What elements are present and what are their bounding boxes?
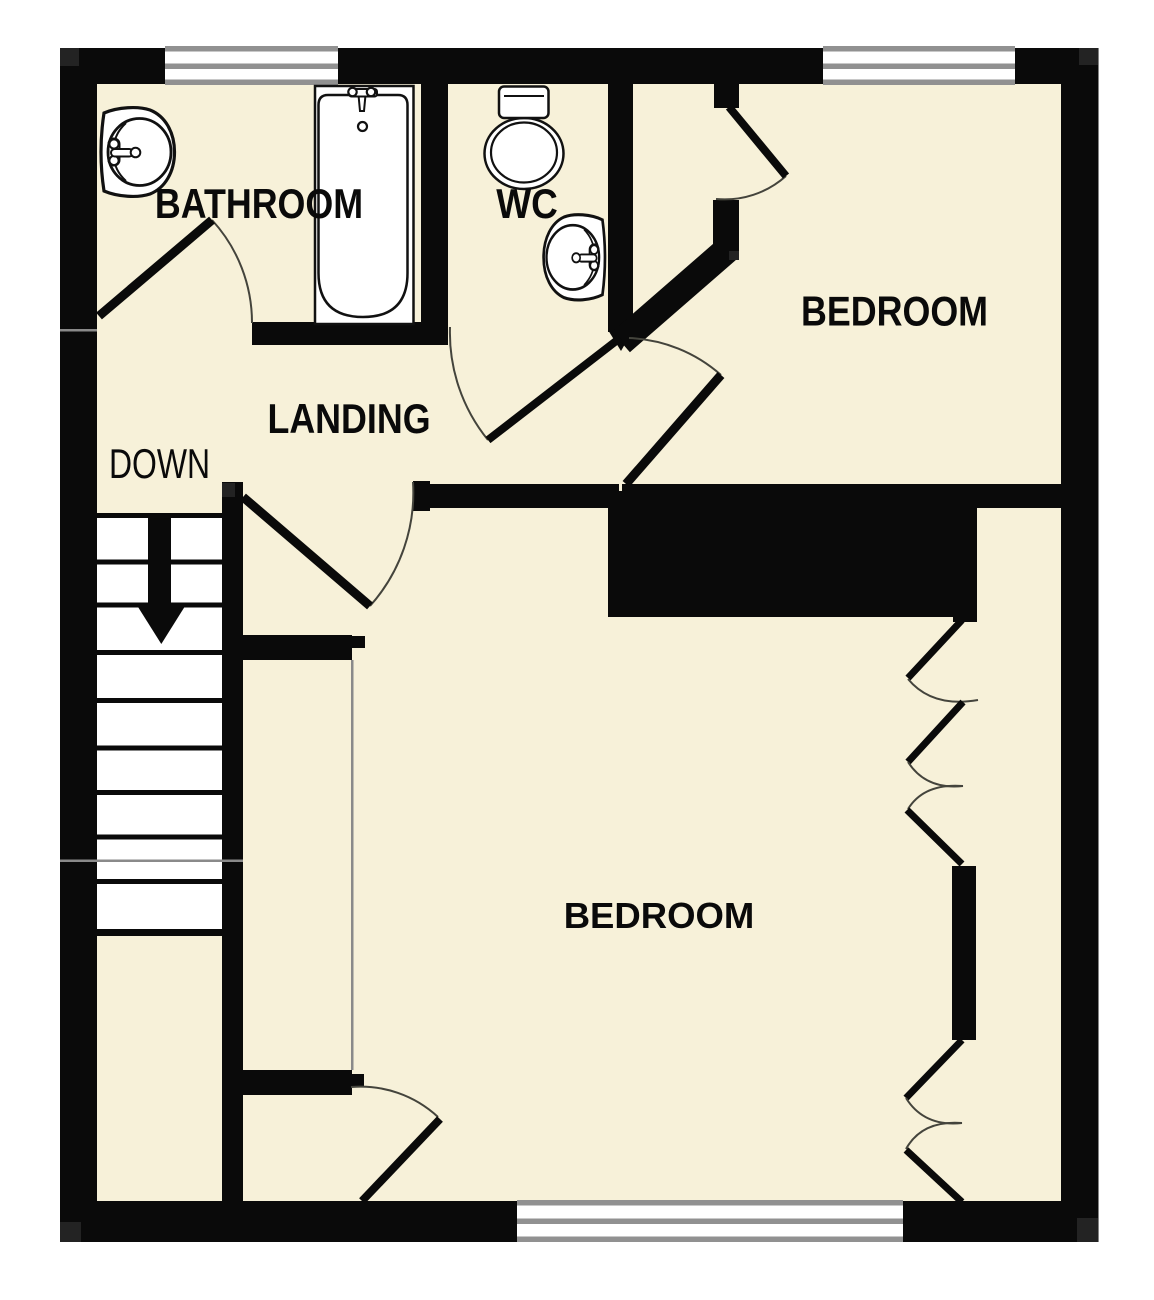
svg-text:BEDROOM: BEDROOM xyxy=(564,895,755,936)
svg-text:BATHROOM: BATHROOM xyxy=(155,181,363,227)
svg-text:WC: WC xyxy=(496,181,558,228)
svg-text:BEDROOM: BEDROOM xyxy=(801,289,988,335)
svg-text:DOWN: DOWN xyxy=(109,440,210,487)
svg-text:LANDING: LANDING xyxy=(267,396,430,442)
